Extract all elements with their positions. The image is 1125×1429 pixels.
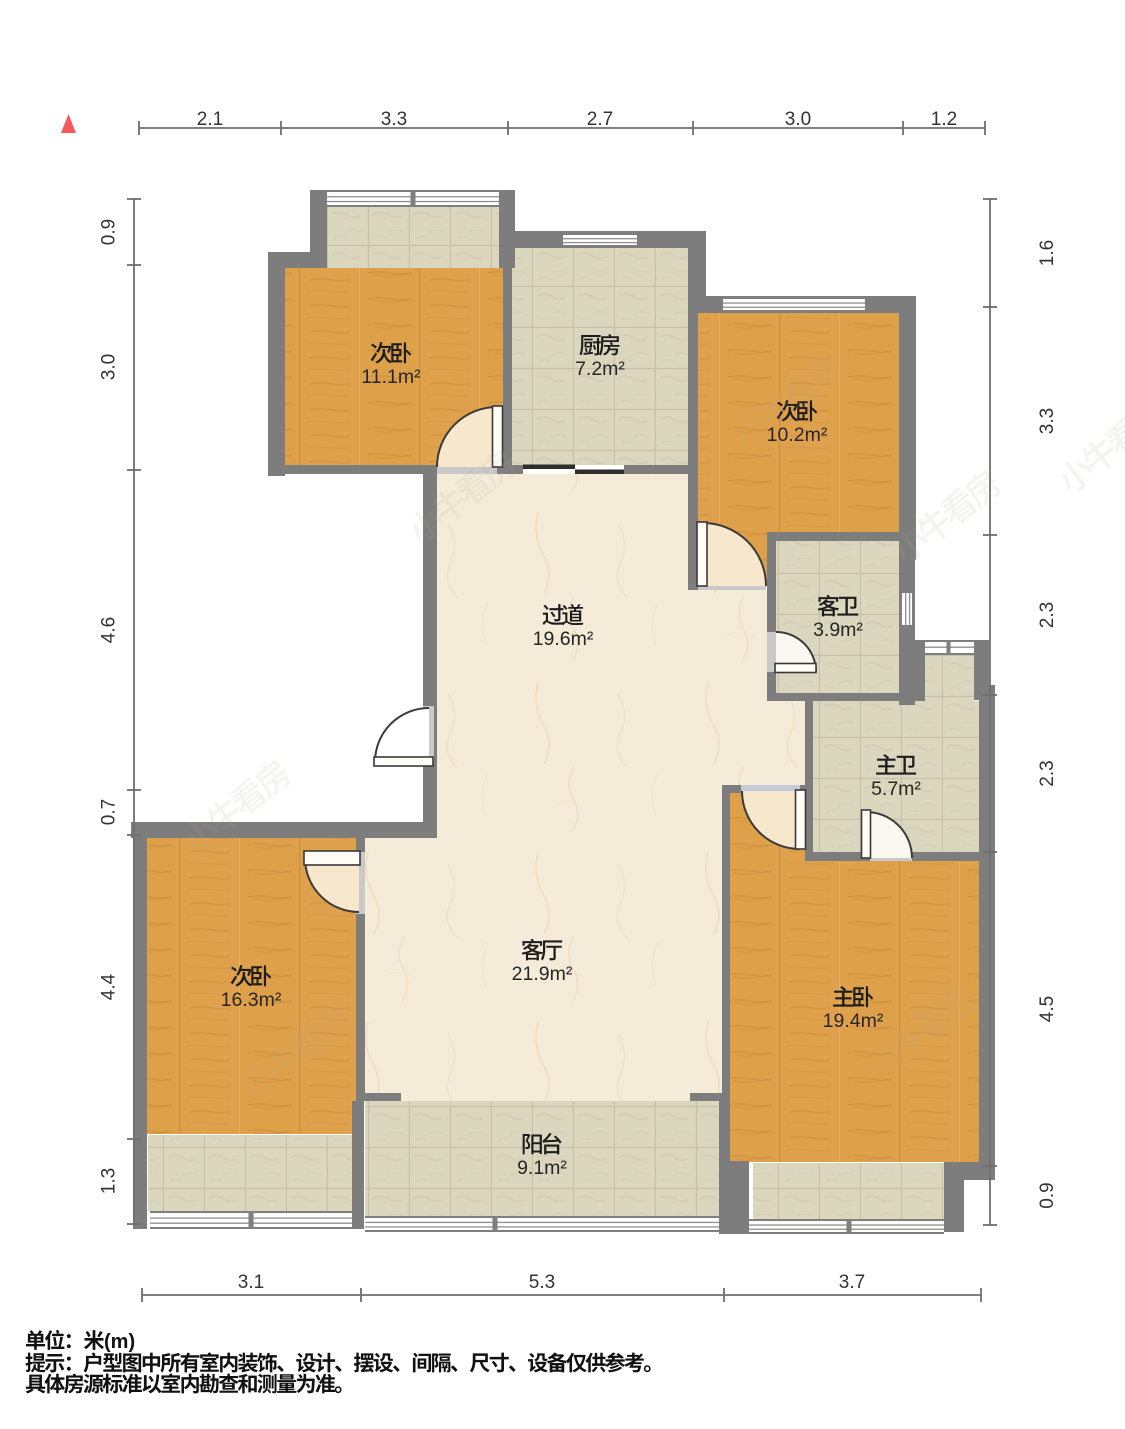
svg-text:19.6m²: 19.6m² (533, 628, 594, 650)
svg-text:3.9m²: 3.9m² (813, 619, 863, 641)
svg-text:4.4: 4.4 (99, 973, 120, 1000)
svg-text:2.3: 2.3 (1037, 760, 1058, 786)
svg-text:0.7: 0.7 (99, 799, 120, 825)
svg-text:(m): (m) (104, 1331, 135, 1353)
svg-text:2.1: 2.1 (197, 109, 223, 130)
svg-text:3.3: 3.3 (381, 109, 407, 130)
svg-text:10.2m²: 10.2m² (767, 424, 828, 446)
svg-text:3.0: 3.0 (785, 109, 811, 130)
svg-text:1.3: 1.3 (99, 1168, 120, 1194)
svg-text:4.5: 4.5 (1037, 996, 1058, 1022)
svg-text:3.7: 3.7 (839, 1272, 865, 1293)
svg-text:9.1m²: 9.1m² (517, 1157, 567, 1179)
svg-text:3.1: 3.1 (238, 1272, 264, 1293)
svg-text:0.9: 0.9 (99, 219, 120, 245)
svg-text:16.3m²: 16.3m² (221, 989, 282, 1011)
svg-text:1.2: 1.2 (931, 109, 957, 130)
svg-text:2.3: 2.3 (1037, 602, 1058, 628)
svg-text:11.1m²: 11.1m² (361, 366, 421, 388)
svg-text:4.6: 4.6 (99, 617, 120, 643)
svg-text:7.2m²: 7.2m² (575, 358, 625, 380)
svg-text:21.9m²: 21.9m² (512, 963, 573, 985)
svg-text:5.3: 5.3 (529, 1272, 555, 1293)
svg-text:3.3: 3.3 (1037, 408, 1058, 434)
svg-text:0.9: 0.9 (1037, 1182, 1058, 1208)
svg-text:3.0: 3.0 (99, 354, 120, 380)
svg-text:19.4m²: 19.4m² (823, 1010, 884, 1032)
svg-text:5.7m²: 5.7m² (871, 778, 921, 800)
svg-text:1.6: 1.6 (1037, 240, 1058, 266)
svg-text:2.7: 2.7 (587, 109, 613, 130)
